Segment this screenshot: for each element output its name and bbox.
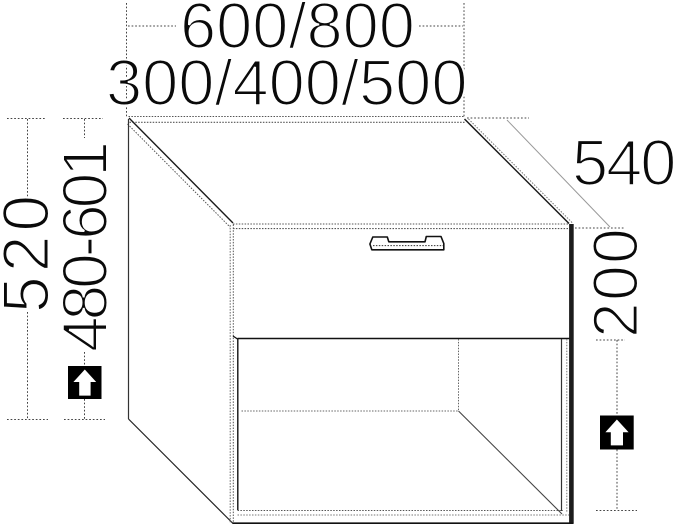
svg-text:540: 540 <box>572 126 674 199</box>
svg-text:200: 200 <box>580 227 652 338</box>
svg-text:300/400/500: 300/400/500 <box>106 46 467 119</box>
svg-text:480-601: 480-601 <box>49 144 121 352</box>
